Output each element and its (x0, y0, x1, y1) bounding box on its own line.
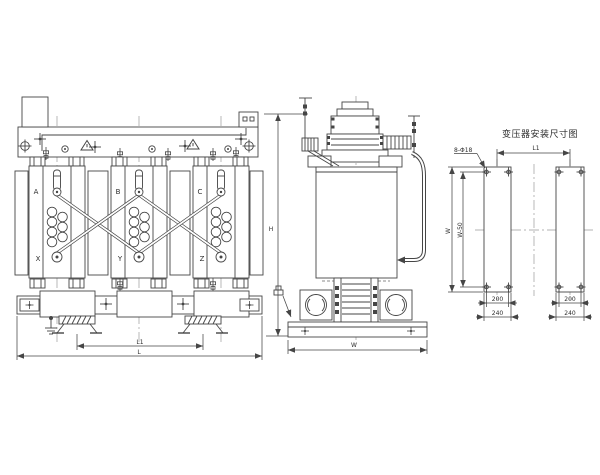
installation-title: 变压器安装尺寸图 (502, 128, 578, 140)
ground-bolt-callout (274, 286, 291, 317)
phase-label-y: Y (117, 255, 123, 263)
top-lifting-beam (18, 97, 258, 161)
dim-h-label: H (269, 226, 274, 233)
dim-240-right-label: 240 (564, 310, 576, 317)
roller-side-right (386, 295, 407, 316)
mounting-rail-right (555, 167, 586, 292)
front-view: A B C X Y Z (15, 97, 308, 360)
phase-label-x: X (36, 255, 41, 263)
base-channel (17, 291, 262, 317)
dim-w-install-label: W (445, 228, 452, 234)
tank-body (316, 167, 397, 278)
installation-view: 变压器安装尺寸图 8-Φ18 L1 (445, 128, 593, 321)
hv-insulator (302, 138, 318, 151)
dim-200-right-label: 200 (564, 296, 576, 303)
dim-240-left-label: 240 (492, 310, 504, 317)
dim-w-side-label: W (351, 342, 357, 349)
mounting-rail-left (482, 167, 513, 292)
side-dimensions: W (288, 340, 427, 354)
core-clamp-top (308, 102, 402, 167)
dim-w50-label: W-50 (457, 222, 464, 238)
dim-l1-label: L1 (136, 339, 143, 346)
roller-side-left (306, 295, 327, 316)
roller-right (178, 316, 228, 333)
phase-label-b: B (116, 188, 121, 196)
dim-l1-install-label: L1 (532, 145, 539, 152)
drawing-page: A B C X Y Z (0, 0, 600, 475)
phase-label-a: A (34, 188, 39, 196)
base-plate (288, 322, 427, 337)
dim-l-label: L (137, 349, 141, 356)
transformer-drawing-canvas: A B C X Y Z (0, 0, 600, 475)
roller-left (52, 316, 102, 333)
dim-200-left-label: 200 (492, 296, 504, 303)
hole-callout-label: 8-Φ18 (454, 147, 473, 154)
lv-cable-duct (397, 153, 424, 264)
phase-label-z: Z (200, 255, 205, 263)
phase-label-c: C (198, 188, 203, 196)
beam-end-bracket (22, 97, 48, 127)
core-leg-clamp (334, 278, 378, 322)
side-view: W (274, 96, 427, 354)
ground-icon (45, 316, 57, 334)
bottom-clamp-side (274, 278, 427, 337)
bolt-icon (210, 278, 215, 291)
hole-callout: 8-Φ18 (454, 147, 485, 168)
nameplate (239, 112, 258, 127)
